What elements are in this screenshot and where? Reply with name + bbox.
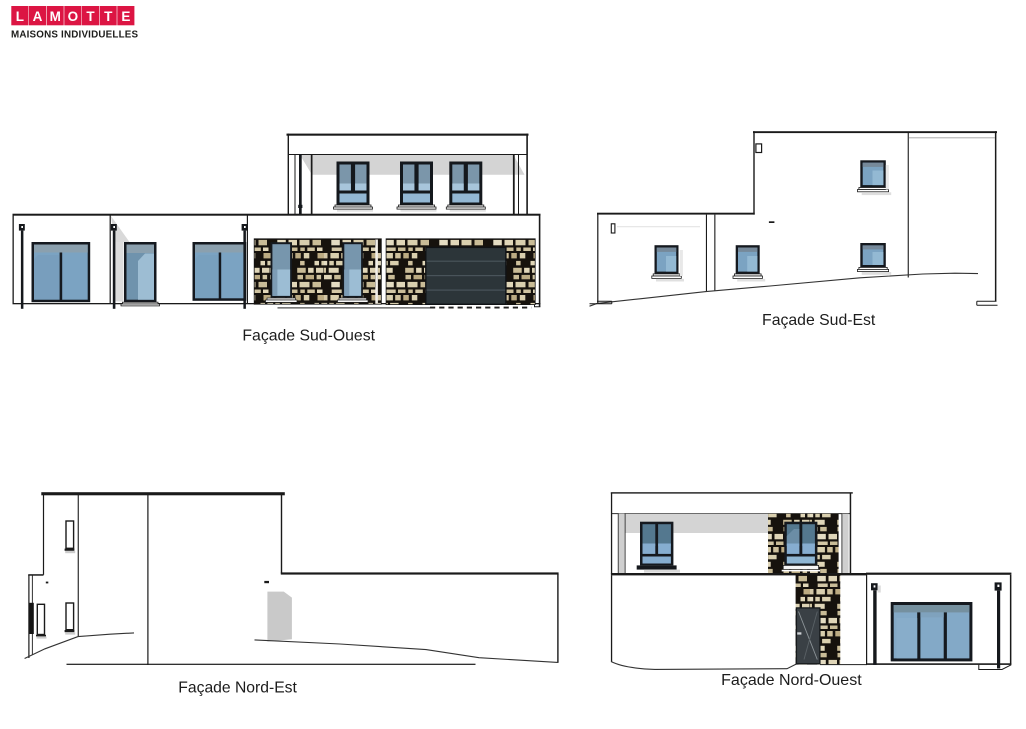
svg-text:E: E [121,9,130,24]
svg-text:L: L [16,9,24,24]
svg-text:O: O [68,9,79,24]
svg-text:Façade Nord-Est: Façade Nord-Est [178,679,297,696]
svg-text:A: A [33,9,43,24]
svg-text:M: M [50,9,61,24]
svg-text:MAISONS INDIVIDUELLES: MAISONS INDIVIDUELLES [11,30,138,41]
svg-text:T: T [86,9,95,24]
svg-text:T: T [104,9,113,24]
svg-text:Façade Nord-Ouest: Façade Nord-Ouest [721,672,862,689]
svg-text:Façade Sud-Est: Façade Sud-Est [762,312,876,329]
svg-text:Façade Sud-Ouest: Façade Sud-Ouest [242,328,375,345]
